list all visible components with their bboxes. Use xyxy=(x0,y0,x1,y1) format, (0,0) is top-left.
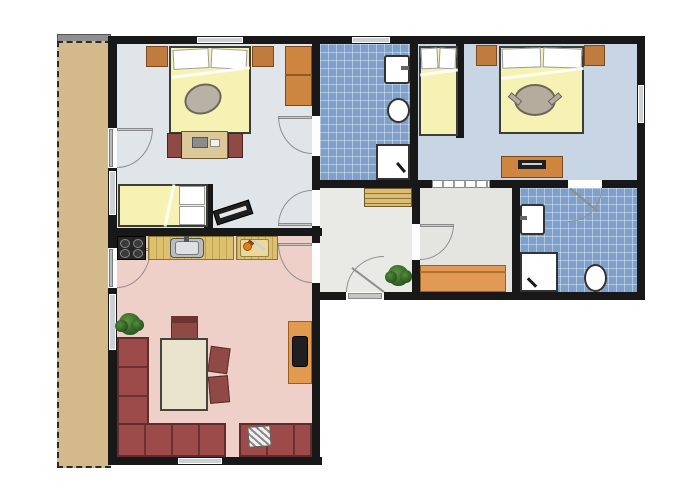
pillow-bedroom2-right xyxy=(543,47,583,68)
nightstand-bedroom2-right xyxy=(584,45,605,66)
sofa-bottom xyxy=(117,423,226,457)
door-gap-hall-dressing xyxy=(412,224,420,260)
dining-chair-right-2 xyxy=(208,375,230,404)
door-gap-bedroom1-bathroom1 xyxy=(312,116,320,156)
study-chair-right xyxy=(228,133,243,158)
wall-bedroom1-living xyxy=(108,228,322,236)
door-gap-hall-living xyxy=(312,243,320,283)
sofa-left-arm xyxy=(117,337,149,425)
stove-burner-1 xyxy=(120,239,130,248)
door-gap-hall-bedroom1 xyxy=(312,190,320,226)
single-bed2-pillow-left xyxy=(420,48,438,70)
single-bed1-pillow-top xyxy=(179,186,205,205)
stove-burner-3 xyxy=(120,249,130,258)
kitchen-sink-basin xyxy=(175,241,199,255)
dining-table xyxy=(160,338,208,411)
single-bed2-pillow-right xyxy=(438,48,456,70)
desk-chair xyxy=(292,336,308,367)
wall-right xyxy=(637,36,645,300)
window-bathroom1-top xyxy=(352,37,390,43)
wardrobe-bedroom1 xyxy=(285,46,312,106)
window-living-bottom xyxy=(178,458,222,464)
sliding-door-dressing-bedroom2 xyxy=(432,180,490,188)
sideboard-line xyxy=(420,271,506,273)
faucet-bathroom2 xyxy=(520,216,527,220)
staircase xyxy=(364,188,412,207)
door-gap-bedroom2-bathroom2 xyxy=(568,180,602,188)
plant-living xyxy=(119,313,141,335)
window-bedroom1-left xyxy=(109,171,116,215)
dining-chair-top-back xyxy=(171,316,198,323)
plant-hallway xyxy=(388,265,409,286)
balcony-floor xyxy=(57,41,111,468)
pillow-bedroom2-left xyxy=(502,47,542,68)
door-panel-balcony-living xyxy=(109,249,113,287)
stove-burner-4 xyxy=(133,249,143,258)
door-panel-balcony-bedroom1 xyxy=(109,129,113,167)
wardrobe-divider xyxy=(285,74,312,76)
stove-burner-2 xyxy=(133,239,143,248)
window-bedroom1-top xyxy=(197,37,243,43)
nightstand-bedroom2-left xyxy=(476,45,497,66)
shower-bathroom1 xyxy=(376,144,410,180)
food-item xyxy=(243,242,252,251)
nightstand-bedroom1-left xyxy=(146,46,168,67)
door-threshold-entrance xyxy=(348,293,382,299)
kitchen-faucet xyxy=(184,236,189,242)
floor-plan xyxy=(0,0,700,500)
loveseat-pillow xyxy=(247,425,271,448)
wall-dressing-bath2 xyxy=(512,188,520,300)
sideboard-dressing xyxy=(420,265,506,292)
dresser-tray-line xyxy=(522,163,542,165)
shower-bathroom2 xyxy=(520,252,558,292)
faucet-bathroom1 xyxy=(401,66,409,70)
pillow-bedroom1-left xyxy=(173,48,210,70)
study-table-item-white xyxy=(210,139,220,147)
window-bedroom2-right xyxy=(638,85,644,123)
single-bed1-pillow-bottom xyxy=(179,206,205,225)
dining-chair-right-1 xyxy=(207,346,230,375)
study-chair-left xyxy=(167,133,182,158)
wall-bath1-bedroom2 xyxy=(410,44,418,188)
nightstand-bedroom1-right xyxy=(252,46,274,67)
toilet-bathroom1 xyxy=(387,98,410,123)
study-table-item-grey xyxy=(192,137,208,148)
toilet-bathroom2 xyxy=(584,264,607,292)
